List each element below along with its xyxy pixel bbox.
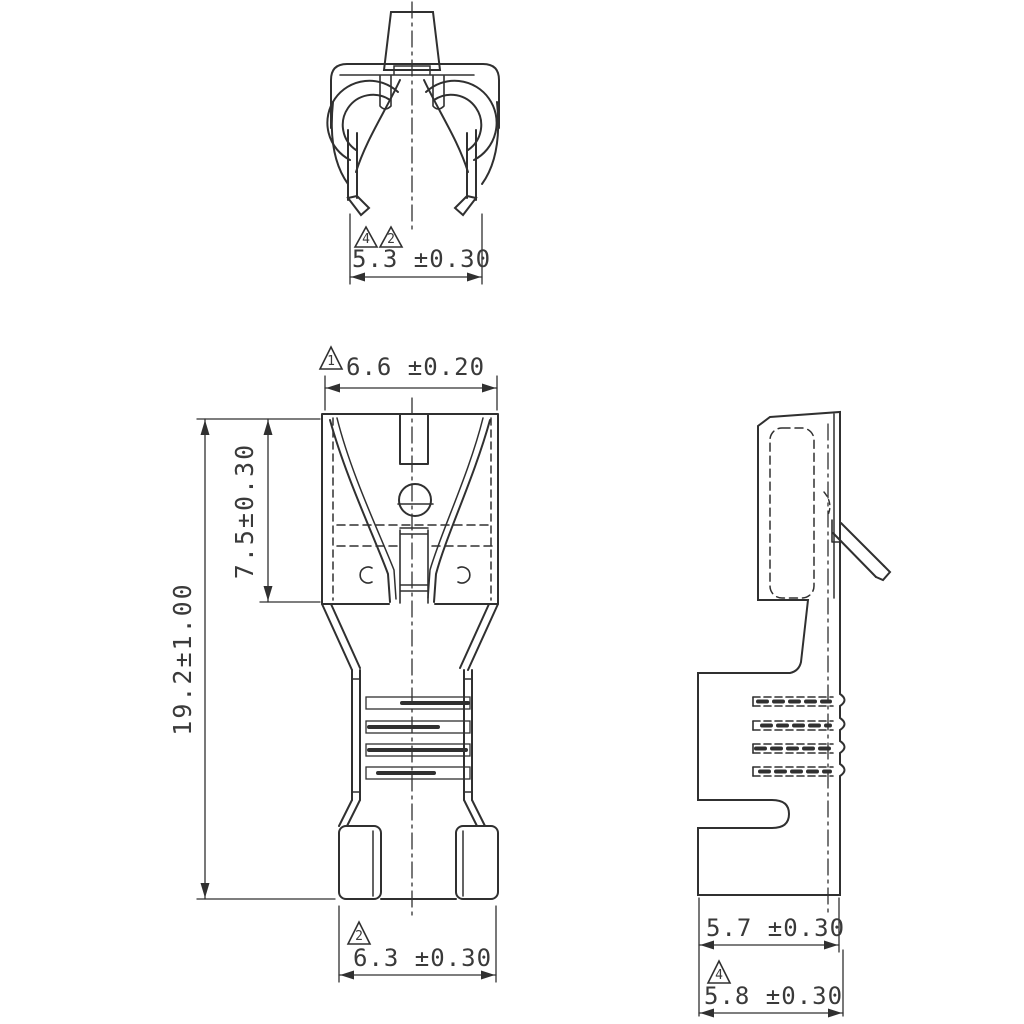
dimension-text: 5.3 ±0.30 (352, 245, 491, 273)
dimension-text: 6.3 ±0.30 (353, 944, 492, 972)
dimension-text: 5.7 ±0.30 (706, 914, 845, 942)
dimension-text: 7.5±0.30 (230, 443, 259, 579)
dimension-text: 6.6 ±0.20 (346, 353, 485, 381)
note-flag-number: 4 (362, 232, 370, 247)
terminal-technical-drawing: 5.3 ±0.30 4 2 (0, 0, 1024, 1024)
note-flag-number: 1 (327, 354, 335, 369)
note-flag-number: 4 (715, 968, 723, 983)
dimension-text: 19.2±1.00 (168, 582, 197, 735)
note-flag-number: 2 (355, 929, 363, 944)
drawing-background (0, 0, 1024, 1024)
note-flag-number: 2 (387, 232, 395, 247)
dimension-text: 5.8 ±0.30 (704, 982, 843, 1010)
